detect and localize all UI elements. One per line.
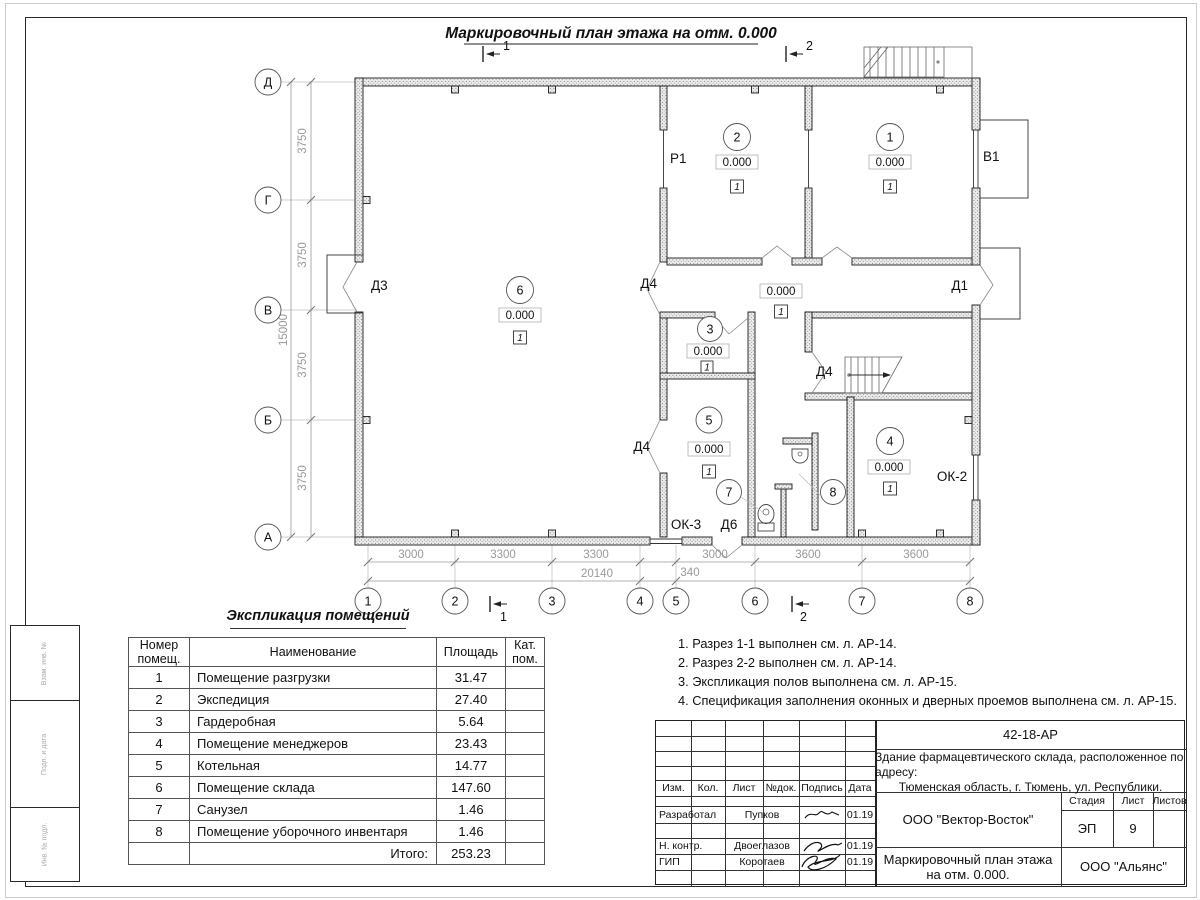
cell-name: Помещение разгрузки (190, 667, 437, 689)
title-block: Изм. Кол. Лист №док. Подпись Дата Разраб… (655, 720, 1185, 885)
section-mark-label: 2 (806, 39, 813, 53)
tb-stage-value: ЭП (1061, 810, 1113, 847)
cell-num: 8 (129, 821, 190, 843)
axis-label: 7 (859, 595, 866, 609)
table-row: 6Помещение склада147.60 (129, 777, 545, 799)
cell-num: 7 (129, 799, 190, 821)
dim-3000: 3000 (398, 549, 424, 561)
dim-20140: 20140 (581, 568, 613, 580)
dim-15000: 15000 (278, 314, 290, 346)
dimensions-bottom: 3000 3300 3300 3000 3600 3600 20140 340 (364, 549, 974, 585)
section-mark-label: 2 (800, 610, 807, 624)
door-swings (343, 246, 993, 558)
cell-area: 23.43 (437, 733, 506, 755)
table-row: 4Помещение менеджеров23.43 (129, 733, 545, 755)
notes-block: 1. Разрез 1-1 выполнен см. л. АР-14. 2. … (678, 634, 1178, 710)
tb-role: Н. контр. (656, 838, 728, 854)
cell-area: 5.64 (437, 711, 506, 733)
cell-cat (506, 733, 545, 755)
axis-label: Б (264, 414, 272, 428)
tb-customer-org: ООО "Альянс" (1061, 847, 1186, 886)
window-tag-ok2: ОК-2 (937, 469, 967, 484)
cell-area: 147.60 (437, 777, 506, 799)
cell-area: 1.46 (437, 821, 506, 843)
sink-fixture (792, 449, 808, 463)
note-line: 1. Разрез 1-1 выполнен см. л. АР-14. (678, 634, 1178, 653)
tb-col-list: Лист (725, 780, 763, 796)
room-number: 5 (706, 414, 713, 428)
tb-doc-code: 42-18-АР (875, 721, 1186, 749)
table-row: 3Гардеробная5.64 (129, 711, 545, 733)
signature (796, 833, 848, 875)
floor-type: 1 (778, 307, 784, 318)
tb-sheet-number: 9 (1113, 810, 1153, 847)
axis-label: 2 (452, 595, 459, 609)
room-level: 0.000 (506, 310, 535, 322)
tb-role: Разработал (656, 806, 728, 823)
cell-num: 4 (129, 733, 190, 755)
cell-name: Помещение склада (190, 777, 437, 799)
col-header-num: Номер помещ. (129, 638, 190, 667)
cell-cat (506, 711, 545, 733)
tb-role: ГИП (656, 854, 728, 870)
axis-label: 3 (549, 595, 556, 609)
cell-cat (506, 689, 545, 711)
tb-date: 01.19 (845, 806, 875, 823)
cell-cat (506, 755, 545, 777)
dim-3750: 3750 (297, 242, 309, 268)
cell-cat (506, 799, 545, 821)
axis-label: А (264, 531, 273, 545)
tb-name: Пупков (725, 806, 799, 823)
door-tag-d4: Д4 (816, 364, 833, 379)
door-tag-d4: Д4 (633, 439, 650, 454)
room-number: 4 (887, 435, 894, 449)
dim-3750: 3750 (297, 352, 309, 378)
tb-drawing-line2: на отм. 0.000. (926, 867, 1009, 882)
room-number: 1 (887, 131, 894, 145)
door-tag-d1: Д1 (951, 278, 968, 293)
tb-name: Двоеглазов (725, 838, 799, 854)
cell-name: Котельная (190, 755, 437, 777)
window-tag-v1: В1 (983, 149, 1000, 164)
axis-label: 5 (673, 595, 680, 609)
table-header-row: Номер помещ. Наименование Площадь Кат. п… (129, 638, 545, 667)
axis-label: 6 (752, 595, 759, 609)
exterior-stairs (864, 47, 972, 78)
dim-340: 340 (680, 567, 699, 579)
tb-col-ndok: №док. (763, 780, 799, 796)
floor-type: 1 (734, 182, 740, 193)
plan-title: Маркировочный план этажа на отм. 0.000 (445, 25, 777, 42)
tb-name: Коротаев (725, 854, 799, 870)
section-marks: 1 2 1 2 (483, 39, 813, 624)
room-number: 7 (726, 486, 733, 500)
cell-name: Гардеробная (190, 711, 437, 733)
note-line: 3. Экспликация полов выполнена см. л. АР… (678, 672, 1178, 691)
axis-label: 1 (365, 595, 372, 609)
room-level: 0.000 (723, 157, 752, 169)
grid-axes-left: Д Г В Б А (255, 69, 281, 550)
window-tag-ok3: ОК-3 (671, 517, 701, 532)
door-tag-d3: Д3 (371, 278, 388, 293)
tb-stage-label: Стадия (1061, 792, 1113, 810)
tb-col-data: Дата (845, 780, 875, 796)
cell-area: 1.46 (437, 799, 506, 821)
tb-object: Здание фармацевтического склада, располо… (875, 752, 1186, 792)
col-header-cat: Кат. пом. (506, 638, 545, 667)
dim-3600: 3600 (795, 549, 821, 561)
toilet-fixture (758, 505, 774, 532)
room-number: 8 (830, 486, 837, 500)
note-line: 4. Спецификация заполнения оконных и две… (678, 691, 1178, 710)
floor-type: 1 (704, 363, 710, 374)
dim-3300: 3300 (583, 549, 609, 561)
cell-empty (129, 843, 190, 865)
annex-outlines (327, 120, 1028, 319)
room-level: 0.000 (767, 286, 796, 298)
dim-3750: 3750 (297, 465, 309, 491)
dim-3300: 3300 (490, 549, 516, 561)
floor-type: 1 (517, 333, 523, 344)
tb-col-izm: Изм. (656, 780, 691, 796)
cell-num: 5 (129, 755, 190, 777)
cell-area: 27.40 (437, 689, 506, 711)
room-level: 0.000 (694, 346, 723, 358)
table-row: 1Помещение разгрузки31.47 (129, 667, 545, 689)
col-header-name: Наименование (190, 638, 437, 667)
tb-sheets-label: Листов (1153, 792, 1186, 810)
grid-extension-lines (281, 82, 970, 588)
cell-num: 3 (129, 711, 190, 733)
cell-num: 2 (129, 689, 190, 711)
cell-area: 31.47 (437, 667, 506, 689)
table-row: 7Санузел1.46 (129, 799, 545, 821)
total-label: Итого: (190, 843, 437, 865)
axis-label: Д (264, 76, 273, 90)
cell-cat (506, 667, 545, 689)
cell-cat (506, 777, 545, 799)
interior-stairs (845, 357, 902, 393)
drawing-sheet: Взам. инв. № Подп. и дата Инв. № подл. М… (0, 0, 1200, 900)
table-row: 2Экспедиция27.40 (129, 689, 545, 711)
tb-design-org: ООО "Вектор-Восток" (875, 792, 1061, 847)
axis-label: В (264, 304, 272, 318)
cell-name: Помещение уборочного инвентаря (190, 821, 437, 843)
tb-drawing-name: Маркировочный план этажа на отм. 0.000. (875, 847, 1061, 886)
col-header-area: Площадь (437, 638, 506, 667)
room-number: 6 (517, 284, 524, 298)
door-tag-d6: Д6 (721, 517, 738, 532)
cell-empty (506, 843, 545, 865)
tb-sheet-label: Лист (1113, 792, 1153, 810)
tb-date: 01.19 (845, 854, 875, 870)
tb-object-line1: Здание фармацевтического склада, располо… (875, 750, 1186, 780)
table-row: 8Помещение уборочного инвентаря1.46 (129, 821, 545, 843)
door-tag-d4: Д4 (640, 276, 657, 291)
axis-label: 4 (637, 595, 644, 609)
floor-type: 1 (706, 467, 712, 478)
dim-3000: 3000 (702, 549, 728, 561)
cell-name: Помещение менеджеров (190, 733, 437, 755)
tb-date: 01.19 (845, 838, 875, 854)
signature (799, 806, 845, 823)
room-number: 2 (734, 131, 741, 145)
dimensions-left: 3750 3750 3750 3750 15000 (278, 78, 315, 541)
axis-label: Г (265, 194, 272, 208)
explication-title: Экспликация помещений (128, 608, 508, 624)
floor-type: 1 (887, 182, 893, 193)
cell-area: 14.77 (437, 755, 506, 777)
dim-3750: 3750 (297, 128, 309, 154)
table-row: 5Котельная14.77 (129, 755, 545, 777)
section-mark-label: 1 (503, 39, 510, 53)
floor-type: 1 (887, 484, 893, 495)
cell-cat (506, 821, 545, 843)
tb-col-kol: Кол. (691, 780, 725, 796)
room-level: 0.000 (875, 462, 904, 474)
tb-drawing-line1: Маркировочный план этажа (884, 852, 1053, 867)
opening-tags: Д3 Д4 Д4 Д4 Д1 Д6 Р1 В1 ОК-2 ОК-3 (371, 149, 1000, 532)
cell-name: Экспедиция (190, 689, 437, 711)
explication-table: Номер помещ. Наименование Площадь Кат. п… (128, 637, 545, 865)
total-value: 253.23 (437, 843, 506, 865)
note-line: 2. Разрез 2-2 выполнен см. л. АР-14. (678, 653, 1178, 672)
cell-name: Санузел (190, 799, 437, 821)
table-total-row: Итого: 253.23 (129, 843, 545, 865)
axis-label: 8 (967, 595, 974, 609)
cell-num: 1 (129, 667, 190, 689)
room-number: 3 (707, 323, 714, 337)
room-level: 0.000 (695, 444, 724, 456)
room-level: 0.000 (876, 157, 905, 169)
dim-3600: 3600 (903, 549, 929, 561)
opening-tag-r1: Р1 (670, 151, 687, 166)
explication-title-underline (230, 628, 406, 629)
cell-num: 6 (129, 777, 190, 799)
tb-col-podpis: Подпись (799, 780, 845, 796)
